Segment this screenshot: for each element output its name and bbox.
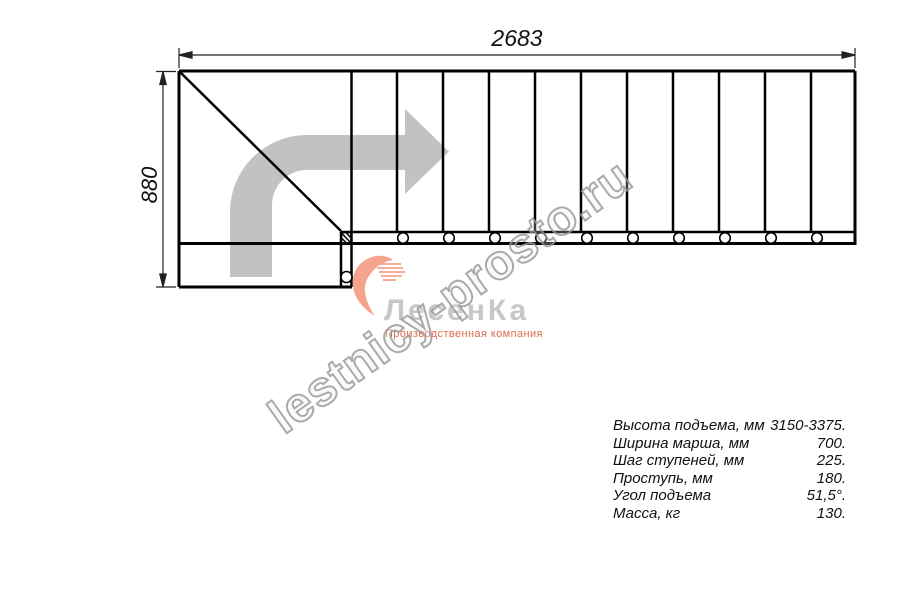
curved-right-arrow-icon bbox=[230, 109, 449, 277]
direction-arrow bbox=[230, 109, 449, 277]
stair-drawing-canvas: 2683 880 ЛесенКа Производственная компан… bbox=[0, 0, 900, 600]
spec-row-flight-width: Ширина марша, мм 700. bbox=[613, 435, 846, 453]
dim-arrow-right bbox=[842, 52, 855, 58]
specs-table: Высота подъема, мм 3150-3375. Ширина мар… bbox=[613, 417, 846, 523]
spec-value: 180. bbox=[817, 470, 846, 488]
spec-label: Шаг ступеней, мм bbox=[613, 452, 744, 470]
spec-value: 51,5°. bbox=[807, 487, 846, 505]
spec-value: 3150-3375. bbox=[770, 417, 846, 435]
hatched-post-square bbox=[342, 233, 352, 244]
dim-arrow-left bbox=[179, 52, 192, 58]
spec-row-height: Высота подъема, мм 3150-3375. bbox=[613, 417, 846, 435]
dimension-total-width: 880 bbox=[138, 155, 162, 215]
dim-arrow-down bbox=[160, 274, 166, 287]
spec-row-step-rise: Шаг ступеней, мм 225. bbox=[613, 452, 846, 470]
spec-value: 700. bbox=[817, 435, 846, 453]
spec-row-tread-depth: Проступь, мм 180. bbox=[613, 470, 846, 488]
spec-value: 130. bbox=[817, 505, 846, 523]
spec-label: Проступь, мм bbox=[613, 470, 713, 488]
dim-arrow-up bbox=[160, 72, 166, 85]
spec-row-mass: Масса, кг 130. bbox=[613, 505, 846, 523]
spec-label: Масса, кг bbox=[613, 505, 680, 523]
spec-label: Высота подъема, мм bbox=[613, 417, 765, 435]
spec-label: Угол подъема bbox=[613, 487, 711, 505]
spec-value: 225. bbox=[817, 452, 846, 470]
spec-row-angle: Угол подъема 51,5°. bbox=[613, 487, 846, 505]
spec-label: Ширина марша, мм bbox=[613, 435, 749, 453]
dimension-total-length: 2683 bbox=[467, 25, 567, 52]
